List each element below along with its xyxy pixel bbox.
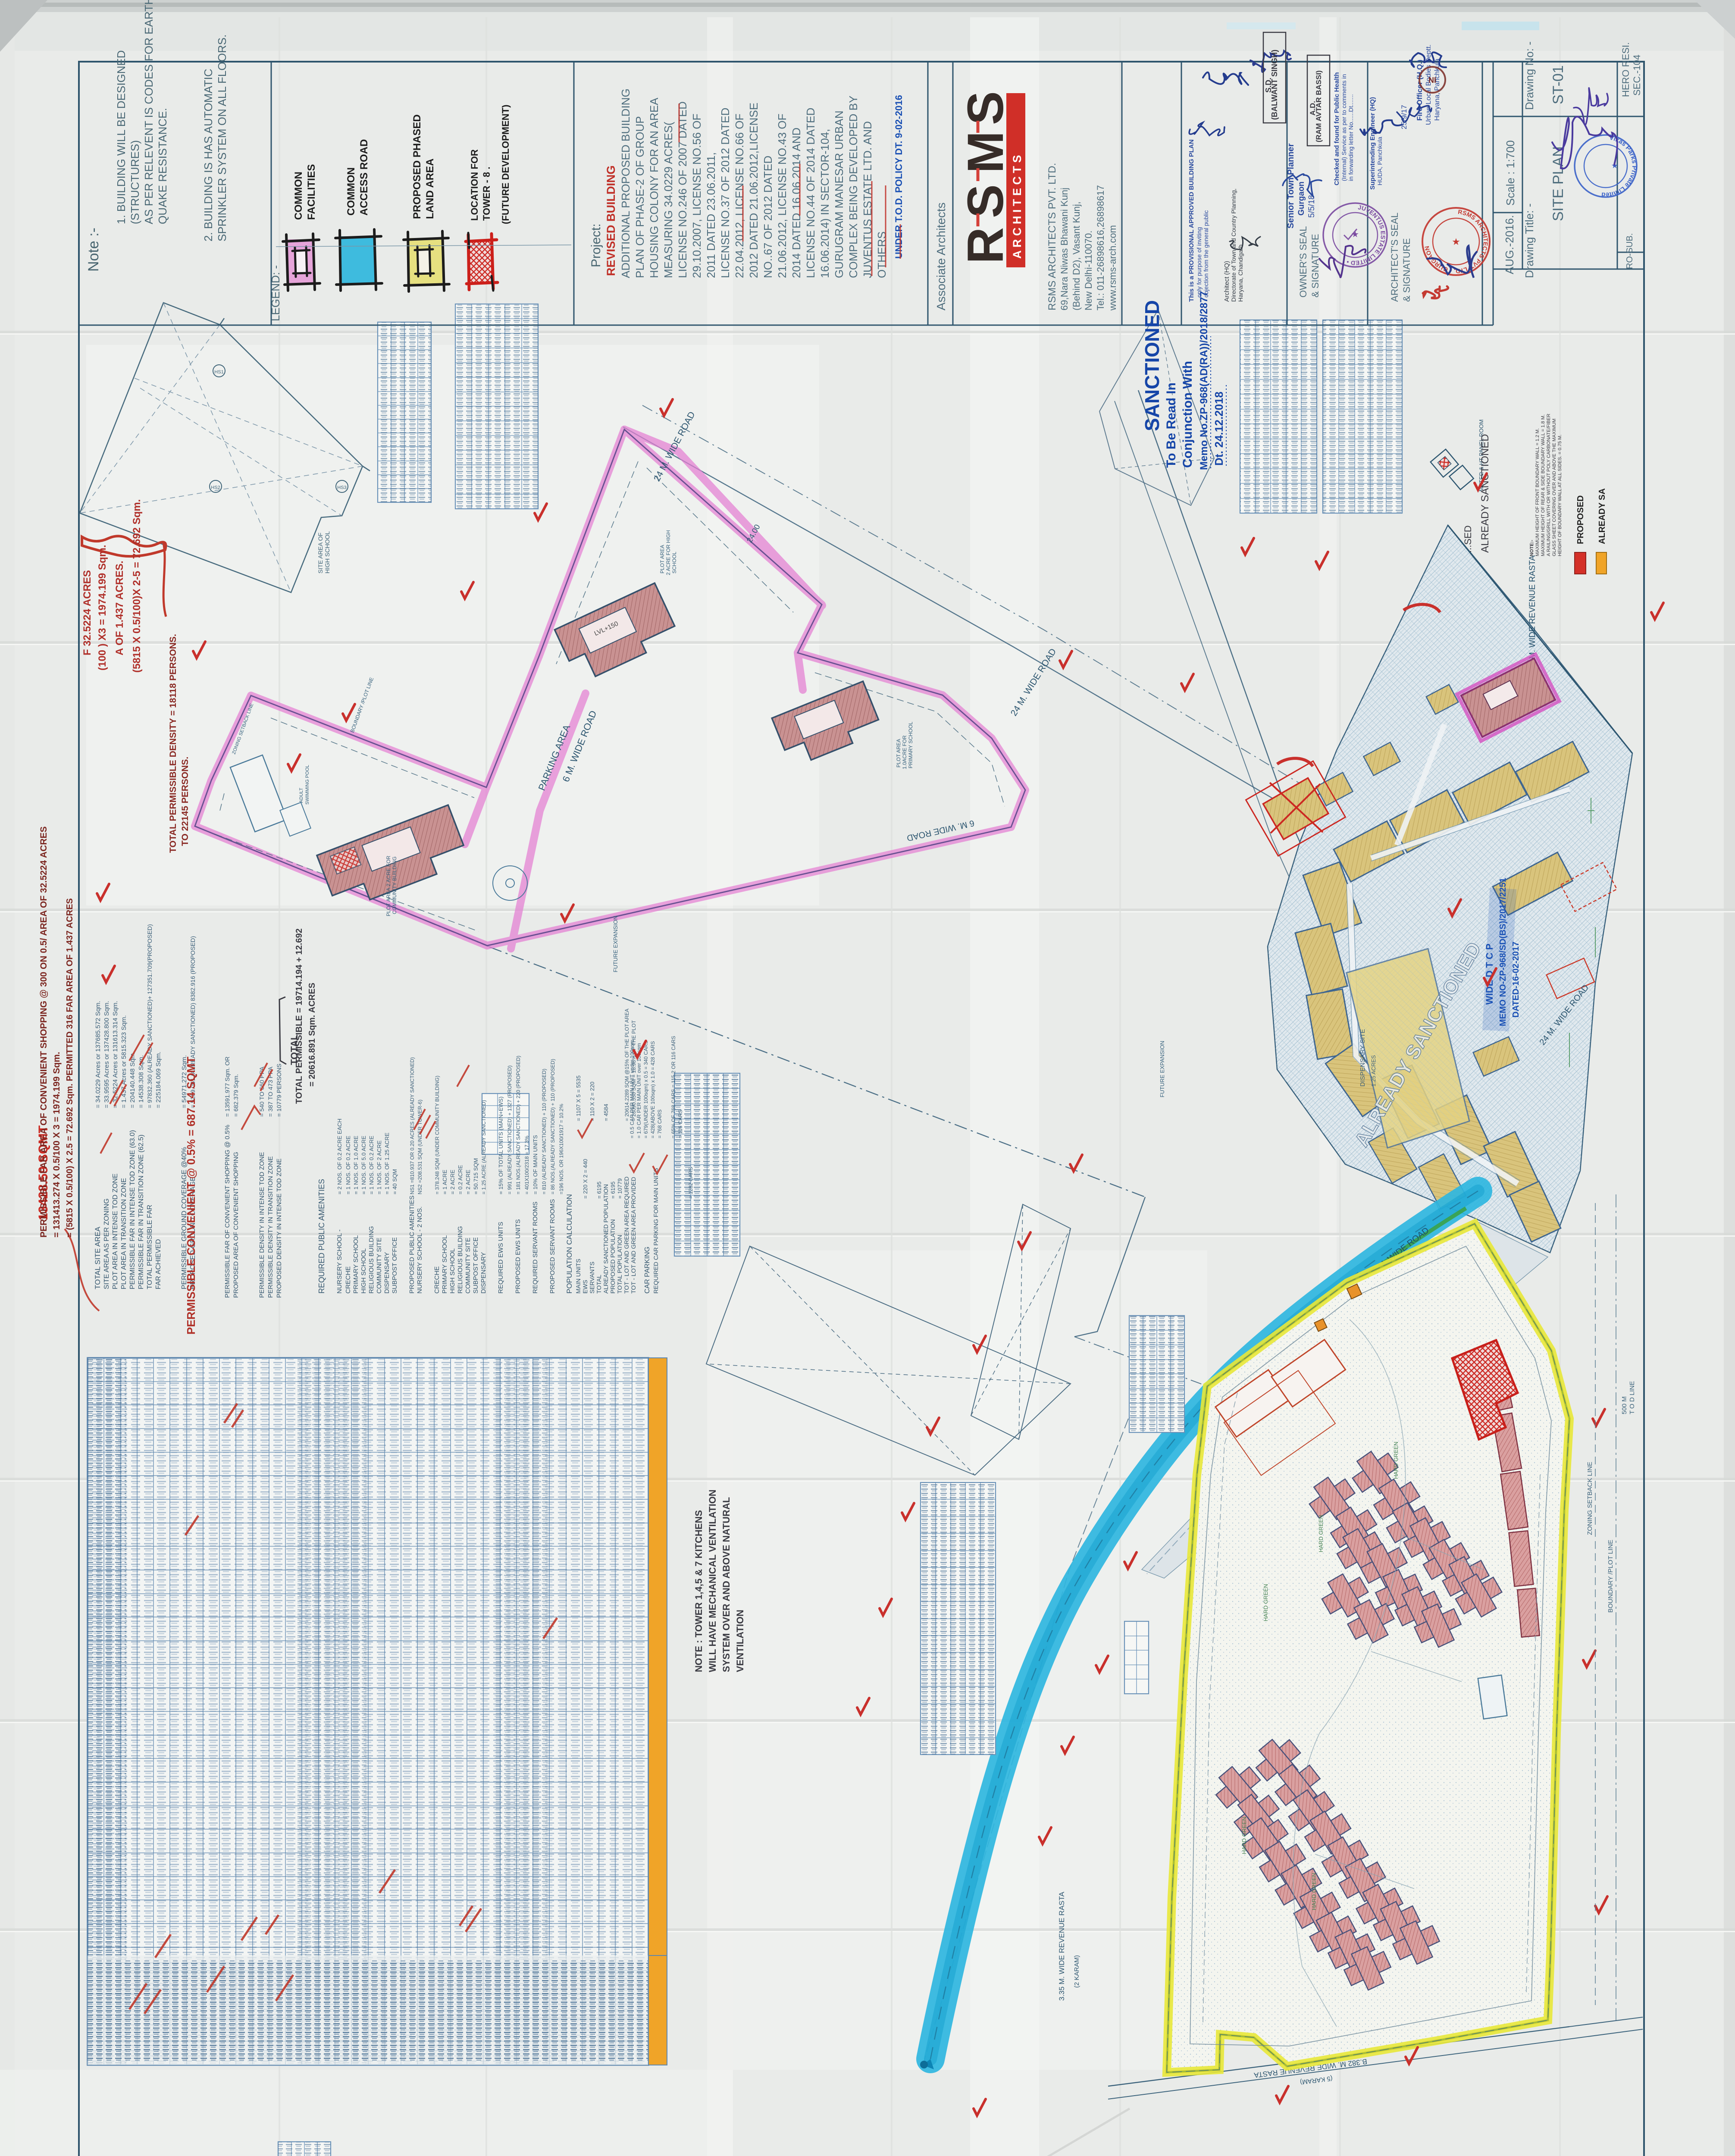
svg-text:Architect (HQ): Architect (HQ) (1223, 261, 1231, 302)
svg-text:= 401X100/2318 = 17.3%: = 401X100/2318 = 17.3% (524, 1136, 530, 1194)
svg-text:Scale : 1:700: Scale : 1:700 (1504, 140, 1517, 206)
svg-text:HARD GREEN: HARD GREEN (1393, 1442, 1399, 1479)
svg-text:MAXIMUM HEIGHT OF REAR & SIDE: MAXIMUM HEIGHT OF REAR & SIDE BOUNDARY W… (1541, 414, 1546, 556)
svg-text:= 225184.069 Sqm.: = 225184.069 Sqm. (155, 1052, 162, 1108)
svg-text:VENTILATION: VENTILATION (735, 1610, 745, 1672)
svg-text:= 13591.977 Sqm. OR: = 13591.977 Sqm. OR (224, 1056, 231, 1117)
svg-text:16.06.2014) IN SECTOR-104,: 16.06.2014) IN SECTOR-104, (818, 129, 831, 278)
svg-text:PLAN OF PHASE-2 OF GROUP: PLAN OF PHASE-2 OF GROUP (633, 116, 646, 278)
svg-text:5/5/18: 5/5/18 (1307, 195, 1316, 218)
svg-text:OWNER'S SEAL: OWNER'S SEAL (1298, 226, 1309, 298)
svg-text:= 1282 CARS: = 1282 CARS (688, 1167, 694, 1199)
svg-text:PRIMARY SCHOOL: PRIMARY SCHOOL (352, 1235, 360, 1294)
svg-text:PERMISSIBLE FAR IN TRANSITION: PERMISSIBLE FAR IN TRANSITION ZONE (62.5… (138, 1134, 145, 1289)
svg-text:HIGH SCHOOL: HIGH SCHOOL (449, 1248, 456, 1294)
svg-text:(5815 X 0.5/100)X 2-5 = 72.692: (5815 X 0.5/100)X 2-5 = 72.692 Sqm. (131, 499, 143, 673)
svg-text:PLOT AREA 2 ACRE FOR: PLOT AREA 2 ACRE FOR (385, 856, 391, 916)
svg-text:REQUIRED EWS UNITS: REQUIRED EWS UNITS (497, 1222, 504, 1294)
svg-text:= 1 NOS. OF 0.2 ACRE: = 1 NOS. OF 0.2 ACRE (368, 1135, 375, 1194)
svg-text:TOT - LOT AND GREEN AREA PROVI: TOT - LOT AND GREEN AREA PROVIDED (630, 1177, 637, 1294)
svg-text:AS PER RELEVENT IS CODES FOR E: AS PER RELEVENT IS CODES FOR EARTH (142, 0, 155, 224)
svg-text:COMMON: COMMON (293, 172, 304, 220)
svg-text:AUG.-2016.: AUG.-2016. (1503, 215, 1516, 274)
svg-text:3.35 M. WIDE REVENUE RASTA: 3.35 M. WIDE REVENUE RASTA (1058, 1891, 1066, 2001)
svg-text:= 1 ACRE: = 1 ACRE (442, 1169, 448, 1194)
svg-text:= 0.2 ACRE: = 0.2 ACRE (457, 1165, 464, 1194)
svg-text:PERMISSIBLE DENSITY IN INTENSE: PERMISSIBLE DENSITY IN INTENSE TOD ZONE (258, 1152, 266, 1298)
svg-text:SPRINKLER SYSTEM ON ALL FLOOR: SPRINKLER SYSTEM ON ALL FLOORS. (216, 34, 229, 241)
svg-text:HIGH SCHOOL: HIGH SCHOOL (324, 531, 331, 573)
svg-text:FAR ACHIEVED: FAR ACHIEVED (155, 1239, 162, 1289)
svg-text:NURSERY SCHOOL - 2 NOS.: NURSERY SCHOOL - 2 NOS. (416, 1206, 423, 1294)
svg-text:SANCTIONED: SANCTIONED (1141, 300, 1163, 431)
svg-text:COMMUNITY SITE: COMMUNITY SITE (376, 1238, 383, 1294)
svg-text:= 378.248 SQM (UNDER COMMUNIT: = 378.248 SQM (UNDER COMMUNITY BUILDING) (434, 1075, 440, 1194)
svg-text:= 6195: = 6195 (610, 1181, 616, 1199)
svg-text:Conjunction With: Conjunction With (1181, 361, 1195, 468)
svg-text:NOTE : TOWER 1,4,5 & 7 KITCHEN: NOTE : TOWER 1,4,5 & 7 KITCHENS (693, 1510, 704, 1672)
svg-text:TOTAL SITE AREA: TOTAL SITE AREA (94, 1226, 102, 1289)
svg-text:DISPENSARY: DISPENSARY (383, 1252, 391, 1294)
svg-text:Checked and found for Public H: Checked and found for Public Health (1333, 72, 1340, 185)
svg-text:= 2 ACRE: = 2 ACRE (465, 1169, 471, 1194)
svg-text:REVISED BUILDING: REVISED BUILDING (604, 165, 617, 276)
svg-text:FACILITIES: FACILITIES (306, 164, 317, 220)
svg-text:Gurgaon: Gurgaon (1297, 182, 1306, 216)
svg-text:ALREADY SANCTIONED POPULATION: ALREADY SANCTIONED POPULATION (602, 1184, 609, 1294)
svg-text:= 428(ABOVE 100sqm) x 1.0 = 42: = 428(ABOVE 100sqm) x 1.0 = 428 CARS (650, 1041, 656, 1138)
svg-text:2011 DATED 23.06.2011,: 2011 DATED 23.06.2011, (705, 152, 717, 278)
svg-text:LAND AREA: LAND AREA (424, 159, 436, 219)
svg-text:★: ★ (1452, 236, 1460, 247)
svg-text:Drawing Title: -: Drawing Title: - (1523, 204, 1536, 278)
svg-text:21.06.2012, LICENSE NO.43 OF: 21.06.2012, LICENSE NO.43 OF (776, 113, 789, 278)
svg-text:F 32.5224 ACRES: F 32.5224 ACRES (81, 570, 93, 655)
svg-text:= 1.25 ACRE (ALREADY SANCTIONE: = 1.25 ACRE (ALREADY SANCTIONED) (481, 1100, 487, 1194)
svg-text:HERO RESI.: HERO RESI. (1620, 42, 1631, 97)
svg-text:HARD GREEN: HARD GREEN (1318, 1515, 1324, 1552)
svg-text:= 20616.891 Sqm. ACRES: = 20616.891 Sqm. ACRES (307, 983, 317, 1087)
svg-text:PROPOSED PUBLIC AMENITIES: PROPOSED PUBLIC AMENITIES (408, 1195, 416, 1294)
svg-text:A OF 1.437 ACRES.: A OF 1.437 ACRES. (114, 561, 125, 655)
svg-text:= 33.9595 Acres or 137428.800: = 33.9595 Acres or 137428.800 Sqm. (103, 1001, 110, 1108)
svg-text:TOTAL PERMISSIBLE = 19714.194: TOTAL PERMISSIBLE = 19714.194 + 12.692 (294, 928, 304, 1104)
svg-text:SERVANTS: SERVANTS (589, 1262, 595, 1294)
svg-text:NOTE:-: NOTE:- (1529, 540, 1535, 556)
svg-text:Note :-: Note :- (85, 228, 102, 272)
svg-text:PROPOSED SERVANT ROOMS: PROPOSED SERVANT ROOMS (549, 1199, 556, 1294)
svg-text:R: R (957, 227, 1014, 264)
svg-text:= 65% OF 768 CARS = 115.2 OR: = 65% OF 768 CARS = 115.2 OR 116 CARS (670, 1036, 676, 1138)
svg-text:1.0ACRE FOR: 1.0ACRE FOR (902, 735, 908, 769)
svg-text:= 32.5224 Acres or 131613.314: = 32.5224 Acres or 131613.314 Sqm. (112, 1001, 119, 1108)
svg-text:= 10779 PERSONS: = 10779 PERSONS (276, 1064, 282, 1117)
svg-text:A.D.: A.D. (1309, 101, 1317, 116)
svg-text:GURUGRAM MANESAR URBAN: GURUGRAM MANESAR URBAN (833, 110, 846, 278)
svg-text:REQUIRED PUBLIC AMENITIES: REQUIRED PUBLIC AMENITIES (317, 1179, 326, 1294)
svg-text:LOCATION FOR: LOCATION FOR (469, 149, 480, 221)
svg-text:HIGH SCHOOL: HIGH SCHOOL (360, 1248, 367, 1294)
svg-text:HS3: HS3 (337, 485, 346, 490)
svg-text:UNDER T.O.D. POLICY DT. 9-: UNDER T.O.D. POLICY DT. 9-02-2016 (893, 95, 904, 259)
svg-text:COMMUNITY BUILDING: COMMUNITY BUILDING (391, 856, 398, 914)
svg-text:(Behind D2), Vasant Kunj,: (Behind D2), Vasant Kunj, (1071, 201, 1082, 310)
svg-text:PERMISSIBLE DENSITY IN TRANSIT: PERMISSIBLE DENSITY IN TRANSITION ZONE (267, 1156, 274, 1298)
svg-text:ADULT: ADULT (299, 787, 304, 803)
svg-text:A R C H I T E C T S: A R C H I T E C T S (1011, 155, 1024, 259)
svg-text:Fire Officer (H.Q.): Fire Officer (H.Q.) (1416, 60, 1424, 121)
svg-text:EWS: EWS (582, 1280, 589, 1294)
svg-text:LICENSE NO.44 OF 2014 DATED: LICENSE NO.44 OF 2014 DATED (804, 108, 817, 278)
svg-text:PROPOSED AREA OF CONVENIENT SH: PROPOSED AREA OF CONVENIENT SHOPPING (232, 1152, 240, 1298)
svg-text:2012 DATED 21.06.2012,LICENSE: 2012 DATED 21.06.2012,LICENSE (747, 103, 760, 278)
svg-text:= 116 CARS: = 116 CARS (677, 1110, 683, 1138)
svg-text:CRECHE: CRECHE (344, 1266, 352, 1294)
svg-text:FUTURE EXPANSION: FUTURE EXPANSION (1159, 1041, 1165, 1097)
svg-text:RELIGIOUS BUILDING: RELIGIOUS BUILDING (457, 1226, 464, 1294)
svg-text:HARD GREEN: HARD GREEN (1311, 1873, 1317, 1910)
svg-text:Project:: Project: (589, 223, 603, 267)
svg-text:= 40 SQM: = 40 SQM (391, 1169, 398, 1194)
svg-text:PRIMARY SCHOOL: PRIMARY SCHOOL (908, 721, 914, 768)
svg-text:22.04.2012, LICENSE NO.66 OF: 22.04.2012, LICENSE NO.66 OF (733, 113, 746, 278)
svg-text:TOWER - 8 .: TOWER - 8 . (481, 167, 492, 221)
svg-text:GLASS SHEET COVERING OVER AND: GLASS SHEET COVERING OVER AND ABOVE THE … (1552, 419, 1557, 556)
svg-text:PERMISSIBLE FAR OF CONVENIENT: PERMISSIBLE FAR OF CONVENIENT SHOPPING @… (224, 1125, 231, 1298)
svg-text:Superintending Engineer (HQ): Superintending Engineer (HQ) (1369, 97, 1376, 190)
svg-text:= 181 NOS.(ALREADY SANCTIONED): = 181 NOS.(ALREADY SANCTIONED) + 220 (PR… (515, 1056, 521, 1194)
svg-text:New Delhi-110070.: New Delhi-110070. (1083, 231, 1094, 310)
svg-text:S: S (957, 91, 1014, 125)
svg-text:(FUTURE DEVELOPMENT): (FUTURE DEVELOPMENT) (500, 105, 511, 224)
svg-text:ZONING SETBACK LINE: ZONING SETBACK LINE (1586, 1462, 1594, 1535)
svg-text:...SED: ...SED (1463, 525, 1473, 553)
svg-text:To Be Read In: To Be Read In (1164, 382, 1178, 468)
svg-text:= 682.379 Sqm.: = 682.379 Sqm. (232, 1074, 239, 1117)
svg-text:= 10779: = 10779 (617, 1178, 623, 1199)
svg-text:= 6195: = 6195 (596, 1181, 602, 1199)
svg-text:PROPOSED PHASED: PROPOSED PHASED (411, 114, 423, 219)
svg-text:= 679(UNDER 100sqm) x 0.5 = 34: = 679(UNDER 100sqm) x 0.5 = 340 CARS (643, 1040, 649, 1138)
svg-text:PROPOSED POPULATION: PROPOSED POPULATION (609, 1219, 616, 1294)
svg-text:REQUIRED SERVANT ROOMS: REQUIRED SERVANT ROOMS (532, 1202, 539, 1294)
svg-text:SITE PLAN: SITE PLAN (1550, 146, 1566, 221)
svg-text:SCHOOL: SCHOOL (671, 552, 677, 573)
svg-text:= 1 NOS. OF 1.0 ACRE: = 1 NOS. OF 1.0 ACRE (353, 1135, 359, 1194)
svg-text:SYSTEM OVER AND ABOVE NATURAL: SYSTEM OVER AND ABOVE NATURAL (721, 1497, 732, 1672)
svg-text:HARD GREEN: HARD GREEN (1241, 1817, 1247, 1854)
svg-text:NI: NI (1428, 76, 1436, 85)
svg-text:S.D.: S.D. (1264, 78, 1273, 93)
svg-text:= 1 NOS. OF 2 ACRE: = 1 NOS. OF 2 ACRE (376, 1140, 382, 1194)
svg-text:(STRUCTURES): (STRUCTURES) (128, 140, 141, 224)
svg-text:= 97832.360 (ALREADY SANCTION: = 97832.360 (ALREADY SANCTIONED)+ 127351… (146, 924, 153, 1108)
svg-text:500 M: 500 M (1621, 1396, 1628, 1414)
svg-text:= 1 NOS. OF 0.2 ACRE: = 1 NOS. OF 0.2 ACRE (345, 1135, 351, 1194)
svg-text:www.rsms-arch.com: www.rsms-arch.com (1107, 225, 1118, 311)
svg-text:PERMISSIBLE FAR IN INTENSE TOD: PERMISSIBLE FAR IN INTENSE TOD ZONE (63.… (129, 1130, 136, 1289)
svg-text:Tel.: 011-26898616,26898617: Tel.: 011-26898616,26898617 (1095, 185, 1106, 310)
svg-text:S: S (957, 184, 1014, 218)
svg-text:Haryana, Chandigarh: Haryana, Chandigarh (1237, 244, 1244, 302)
svg-text:NS1 =810.937 OR 0.20 ACRES (AL: NS1 =810.937 OR 0.20 ACRES (ALREADY SANC… (409, 1057, 415, 1194)
svg-text:= 10% OF MAIN UNITS: = 10% OF MAIN UNITS (532, 1135, 539, 1194)
svg-text:= 34.0229 Acres or 137685.572: = 34.0229 Acres or 137685.572 Sqm. (94, 1001, 102, 1108)
svg-text:= 220 X 2 = 440: = 220 X 2 = 440 (582, 1159, 589, 1199)
svg-text:A RAILING/GRILL WITH OR WITHOU: A RAILING/GRILL WITH OR WITHOUT POLY CAR… (1546, 414, 1551, 556)
svg-text:Drawing No: -: Drawing No: - (1523, 41, 1536, 110)
svg-text:★: ★ (1351, 230, 1359, 239)
svg-text:& SIGNATURE: & SIGNATURE (1401, 238, 1412, 302)
svg-text:29.10.2007, LICENSE NO.56 OF: 29.10.2007, LICENSE NO.56 OF (690, 113, 703, 278)
svg-text:=196 NOS. OR 196X100/1917 = 10: =196 NOS. OR 196X100/1917 = 10.2% (558, 1104, 564, 1194)
svg-text:BOUNDARY /PLOT LINE: BOUNDARY /PLOT LINE (1607, 1540, 1614, 1613)
svg-text:ST-01: ST-01 (1550, 65, 1566, 104)
svg-text:= 810 (ALREADY SANCTIONED) + 1: = 810 (ALREADY SANCTIONED) + 110 (PROPOS… (541, 1069, 547, 1194)
svg-text:SWIMMING POOL: SWIMMING POOL (305, 765, 310, 805)
svg-text:MAXIMUM HEIGHT OF FRONT BOUNDA: MAXIMUM HEIGHT OF FRONT BOUNDARY WALL = … (1535, 428, 1540, 556)
svg-text:PLOT AREA IN TRANSITION ZONE: PLOT AREA IN TRANSITION ZONE (120, 1178, 128, 1289)
svg-text:2 ACRE FOR HIGH: 2 ACRE FOR HIGH (665, 530, 671, 575)
svg-text:ARCHITECT'S SEAL: ARCHITECT'S SEAL (1389, 213, 1400, 302)
svg-text:HOUSING COLONY FOR AN AREA: HOUSING COLONY FOR AN AREA (648, 97, 661, 278)
svg-text:= 1 NOS. OF 1.25 ACRE: = 1 NOS. OF 1.25 ACRE (384, 1132, 390, 1194)
svg-text:(Internal) Service as per to c: (Internal) Service as per to comments in (1340, 74, 1347, 181)
svg-text:69,Nara Niwas Bhawani Kunj: 69,Nara Niwas Bhawani Kunj (1059, 188, 1070, 310)
svg-text:= 131413.274 X 0.5/100 X 3 = 1: = 131413.274 X 0.5/100 X 3 = 1974.199 Sq… (52, 1052, 62, 1238)
svg-text:PLOT AREA IN INTENSE TOD ZONE: PLOT AREA IN INTENSE TOD ZONE (112, 1173, 119, 1289)
svg-text:CRECHE: CRECHE (433, 1266, 441, 1294)
svg-text:PERMISSIBLE CONVENIENT @ 0.5%: PERMISSIBLE CONVENIENT @ 0.5% = 687.14 S… (185, 1056, 197, 1335)
svg-text:Associate Architects: Associate Architects (934, 202, 948, 310)
svg-text:PLOT AREA: PLOT AREA (896, 739, 902, 768)
svg-text:= 991 (ALREADY SANCTIONED) + 1: = 991 (ALREADY SANCTIONED) + 1327 (PROPO… (507, 1065, 513, 1194)
svg-text:RO-SUB.: RO-SUB. (1625, 233, 1635, 269)
svg-text:= 110 X 2 = 220: = 110 X 2 = 220 (589, 1081, 595, 1121)
svg-text:REQUIRED CAR PARKING FOR MAIN: REQUIRED CAR PARKING FOR MAIN UNITS (652, 1168, 659, 1294)
svg-text:(2 KARAM): (2 KARAM) (1073, 1955, 1080, 1988)
svg-text:ALREADY SA: ALREADY SA (1597, 488, 1607, 544)
svg-text:HEIGHT OF BOUNDARY WALL AT ALL: HEIGHT OF BOUNDARY WALL AT ALL SIDES. = … (1557, 435, 1563, 556)
svg-text:25/9/17: 25/9/17 (1400, 105, 1408, 129)
svg-text:ADDITIONAL PROPOSED BUILDING: ADDITIONAL PROPOSED BUILDING (619, 88, 632, 278)
svg-text:POPULATION CALCULATION: POPULATION CALCULATION (565, 1194, 573, 1294)
svg-text:PERMISSIBLE FAR AREA OF CONVEN: PERMISSIBLE FAR AREA OF CONVENIENT SHOPP… (39, 826, 49, 1238)
svg-text:CAR PARKING: CAR PARKING (644, 1247, 651, 1294)
svg-text:MAIN UNITS: MAIN UNITS (575, 1259, 582, 1294)
svg-text:in forwarding letter No......: in forwarding letter No......Dt....... (1347, 94, 1354, 181)
svg-text:objection from the general pub: objection from the general public (1203, 210, 1209, 298)
svg-text:PRIMARY SCHOOL: PRIMARY SCHOOL (441, 1235, 448, 1294)
svg-text:QUAKE RESISTANCE.: QUAKE RESISTANCE. (156, 108, 169, 224)
svg-text:MEASURING 34.0229 ACRES(: MEASURING 34.0229 ACRES( (662, 122, 675, 278)
svg-text:= (5815 X 0.5/100) X 2.5 = 72.: = (5815 X 0.5/100) X 2.5 = 72.692 Sqm. P… (65, 898, 75, 1238)
svg-text:2014 DATED 16.06.2014 AND: 2014 DATED 16.06.2014 AND (790, 128, 803, 278)
svg-text:1. BUILDING WILL BE DESIGNED: 1. BUILDING WILL BE DESIGNED (115, 50, 128, 224)
svg-text:SUBPOST OFFICE: SUBPOST OFFICE (391, 1237, 398, 1294)
svg-text:TOTAL PERMISSIBLE DENSITY = 18: TOTAL PERMISSIBLE DENSITY = 18118 PERSON… (168, 634, 178, 853)
svg-text:RSMS ARCHITECTS PVT. LTD.: RSMS ARCHITECTS PVT. LTD. (1046, 163, 1058, 310)
svg-text:= 1107 X 5 = 5535: = 1107 X 5 = 5535 (575, 1075, 582, 1121)
svg-text:Dt. 24.12.2018: Dt. 24.12.2018 (1212, 392, 1225, 466)
svg-text:= 768 CARS: = 768 CARS (657, 1109, 663, 1138)
svg-text:= 2 ACRE: = 2 ACRE (449, 1169, 456, 1194)
svg-text:LICENSE NO.246 OF 2007 DATED: LICENSE NO.246 OF 2007 DATED (676, 101, 689, 278)
svg-text:NURSERY SCHOOL -: NURSERY SCHOOL - (336, 1229, 343, 1294)
svg-text:= 15% OF TOTAL UNITS (MAIN+EWS: = 15% OF TOTAL UNITS (MAIN+EWS) (498, 1097, 504, 1194)
svg-text:PLOT AREA: PLOT AREA (659, 545, 665, 573)
svg-text:M: M (957, 131, 1014, 173)
svg-text:ACCESS ROAD: ACCESS ROAD (358, 139, 370, 216)
svg-text:Urban Local Bodies Deptt.: Urban Local Bodies Deptt. (1425, 44, 1432, 125)
svg-text:NO..67 OF 2012 DATED: NO..67 OF 2012 DATED (761, 156, 774, 278)
svg-text:2. BUILDING IS HAS AUTOMATIC: 2. BUILDING IS HAS AUTOMATIC (202, 69, 215, 241)
svg-text:TO 22145 PERSONS.: TO 22145 PERSONS. (180, 757, 190, 846)
svg-text:TOTAL POPULATION: TOTAL POPULATION (616, 1235, 623, 1294)
svg-text:HS1: HS1 (214, 370, 223, 375)
svg-text:LEGEND: -: LEGEND: - (269, 265, 282, 321)
svg-text:COMPLEX BEING DEVELOPED BY: COMPLEX BEING DEVELOPED BY (847, 96, 860, 278)
svg-text:HARD GREEN: HARD GREEN (1262, 1584, 1269, 1621)
svg-text:= 86 NOS.(ALREADY SANCTIONED): = 86 NOS.(ALREADY SANCTIONED) + 110 (PRO… (550, 1059, 556, 1194)
svg-text:LICENSE NO.37 OF 2012 DATED: LICENSE NO.37 OF 2012 DATED (719, 108, 732, 278)
svg-text:DISPENSARY SITE: DISPENSARY SITE (1359, 1029, 1366, 1087)
svg-text:1.25 ACRES: 1.25 ACRES (1370, 1055, 1377, 1087)
svg-text:TOTAL PERMISSIBLE FAR: TOTAL PERMISSIBLE FAR (146, 1205, 153, 1289)
svg-text:(100 ) X3 = 1974.199 Sqm.: (100 ) X3 = 1974.199 Sqm. (97, 545, 108, 671)
svg-text:DISPENSARY: DISPENSARY (480, 1252, 487, 1294)
svg-text:ALREADY SANCTIONED: ALREADY SANCTIONED (1479, 434, 1491, 553)
svg-text:TOTAL: TOTAL (595, 1275, 602, 1294)
svg-text:= 4584: = 4584 (603, 1104, 609, 1121)
svg-text:Memo No.ZP-968(AD(RA))/2018/28: Memo No.ZP-968(AD(RA))/2018/2877 (1198, 291, 1210, 470)
svg-text:Senior Town Planner: Senior Town Planner (1286, 143, 1296, 229)
svg-text:PROPOSED EWS UNITS: PROPOSED EWS UNITS (514, 1219, 522, 1294)
svg-text:& SIGNATURE: & SIGNATURE (1310, 234, 1321, 298)
svg-text:only for purpose of inviting: only for purpose of inviting (1196, 227, 1203, 298)
svg-text:SITE AREA OF: SITE AREA OF (317, 533, 324, 573)
svg-text:WILL HAVE MECHANICAL VENTILATI: WILL HAVE MECHANICAL VENTILATION (707, 1489, 718, 1672)
svg-text:TOT - LOT AND GREEN AREA REQUI: TOT - LOT AND GREEN AREA REQUIRED (623, 1176, 630, 1294)
svg-text:PROPOSED: PROPOSED (1576, 495, 1585, 544)
svg-text:PROPOSED DENSITY IN INTENSE T: PROPOSED DENSITY IN INTENSE TOD ZONE (276, 1159, 283, 1298)
svg-text:= 0.5 CAR PER MAIN UNIT under: = 0.5 CAR PER MAIN UNIT under 100sqm (629, 1040, 635, 1138)
svg-text:T O D LINE: T O D LINE (1629, 1381, 1636, 1414)
svg-text:= 2 NOS. OF 0.2 ACRE EACH: = 2 NOS. OF 0.2 ACRE EACH (336, 1119, 343, 1194)
svg-text:This is a PROVISIONAL APPROVED: This is a PROVISIONAL APPROVED BUILDING … (1188, 139, 1195, 302)
svg-text:HS2: HS2 (211, 485, 220, 490)
svg-text:COMMUNITY SITE: COMMUNITY SITE (464, 1238, 472, 1294)
svg-text:SITE AREA AS PER ZONING: SITE AREA AS PER ZONING (103, 1198, 110, 1289)
svg-text:= 50.715 SQM: = 50.715 SQM (473, 1158, 479, 1194)
svg-text:FUTURE EXPANSION: FUTURE EXPANSION (612, 916, 619, 972)
svg-text:SUBPOST OFFICE: SUBPOST OFFICE (472, 1237, 479, 1294)
svg-text:RELIGIOUS BUILDING: RELIGIOUS BUILDING (368, 1226, 375, 1294)
svg-text:= 1 NOS. OF 5.0 ACRE: = 1 NOS. OF 5.0 ACRE (360, 1135, 367, 1194)
svg-text:SEC.-104: SEC.-104 (1632, 55, 1642, 96)
svg-text:COMMON: COMMON (345, 167, 357, 216)
svg-text:HUDA, Panchkula: HUDA, Panchkula (1376, 137, 1383, 185)
